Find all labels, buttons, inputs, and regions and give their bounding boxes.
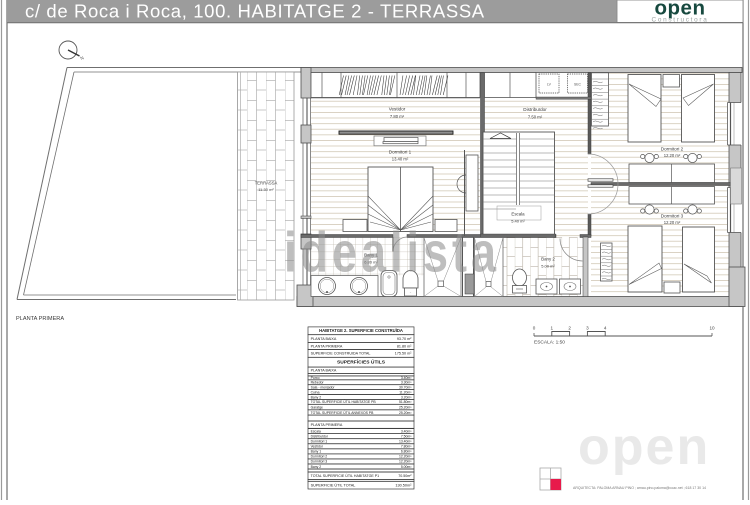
svg-text:Rebedor: Rebedor [311, 381, 325, 385]
svg-text:7.50 m²: 7.50 m² [528, 115, 543, 120]
svg-text:Escala: Escala [311, 429, 321, 433]
svg-text:Escala: Escala [511, 212, 525, 217]
svg-text:Garatge: Garatge [311, 405, 323, 409]
svg-text:2: 2 [568, 326, 571, 331]
svg-text:Bany 1: Bany 1 [311, 450, 322, 454]
svg-text:Dormitori 3: Dormitori 3 [311, 460, 328, 464]
svg-text:175.50 m²: 175.50 m² [395, 352, 412, 356]
svg-text:c/ de Roca i Roca, 100. HABITA: c/ de Roca i Roca, 100. HABITATGE 2 - TE… [25, 1, 485, 22]
svg-text:93.70 m²: 93.70 m² [397, 337, 412, 341]
svg-text:TERRASSA: TERRASSA [255, 181, 278, 186]
svg-text:81.80 m²: 81.80 m² [397, 344, 412, 348]
svg-text:HABITATGE 2. SUPERFICIE CONSTR: HABITATGE 2. SUPERFICIE CONSTRUÏDA [319, 328, 403, 333]
svg-text:130.50m²: 130.50m² [395, 483, 412, 487]
svg-text:12.20m²: 12.20m² [399, 460, 412, 464]
svg-text:Distribuïdor: Distribuïdor [311, 434, 329, 438]
svg-text:ARQUITECTA: PALOMA ARNAU PINO: ARQUITECTA: PALOMA ARNAU PINO ; arnau.pi… [573, 486, 706, 490]
svg-text:Dormitori 1: Dormitori 1 [389, 150, 412, 155]
svg-text:Dormitori 2: Dormitori 2 [311, 455, 328, 459]
svg-text:TOTAL SUPERFICIE ÚTIL ANNEXOS: TOTAL SUPERFICIE ÚTIL ANNEXOS PB [311, 410, 374, 415]
svg-text:12.20 m²: 12.20 m² [664, 220, 681, 225]
svg-text:open: open [578, 418, 710, 476]
svg-text:51.80m²: 51.80m² [399, 400, 412, 404]
svg-text:13.40m²: 13.40m² [399, 440, 412, 444]
svg-text:Bany 2: Bany 2 [311, 395, 322, 399]
svg-text:12.20 m²: 12.20 m² [664, 153, 681, 158]
svg-text:70.50m²: 70.50m² [398, 474, 412, 478]
svg-text:TOTAL SUPERFICIE ÚTIL HABITATG: TOTAL SUPERFICIE ÚTIL HABITATGE P1 [311, 473, 380, 478]
svg-text:25.20m²: 25.20m² [399, 405, 412, 409]
svg-text:Dormitori 1: Dormitori 1 [311, 440, 328, 444]
svg-text:Bany 2: Bany 2 [311, 465, 322, 469]
svg-text:SEC: SEC [574, 83, 582, 87]
svg-text:25.20m²: 25.20m² [399, 411, 412, 415]
svg-text:Dormitori 2: Dormitori 2 [661, 147, 684, 152]
svg-text:PLANTA PRIMERA: PLANTA PRIMERA [311, 423, 343, 427]
svg-text:Cuina: Cuina [311, 390, 320, 394]
svg-text:7.50m²: 7.50m² [401, 434, 412, 438]
svg-text:30.70m²: 30.70m² [399, 385, 412, 389]
svg-text:3.40m²: 3.40m² [401, 429, 412, 433]
svg-text:Dormitori 3: Dormitori 3 [661, 214, 684, 219]
svg-text:4: 4 [604, 326, 607, 331]
svg-text:PLANTA BAIXA: PLANTA BAIXA [311, 369, 337, 373]
svg-text:SUPERFICIE CONSTRUIDA TOTAL: SUPERFICIE CONSTRUIDA TOTAL [311, 352, 371, 356]
svg-text:Vestidor: Vestidor [311, 445, 324, 449]
svg-text:PLANTA BAIXA: PLANTA BAIXA [311, 337, 337, 341]
svg-text:7.80 m²: 7.80 m² [390, 114, 405, 119]
svg-text:12.20m²: 12.20m² [399, 455, 412, 459]
svg-text:5.00m²: 5.00m² [401, 465, 412, 469]
svg-text:0: 0 [533, 326, 536, 331]
svg-text:3.30m²: 3.30m² [401, 381, 412, 385]
svg-text:Sala - menjador: Sala - menjador [311, 385, 336, 389]
svg-text:3: 3 [586, 326, 589, 331]
svg-text:5.40 m²: 5.40 m² [511, 219, 525, 224]
svg-text:PLANTA PRIMERA: PLANTA PRIMERA [16, 316, 64, 322]
svg-text:idealista: idealista [284, 221, 500, 284]
svg-text:11.20m²: 11.20m² [399, 390, 412, 394]
svg-text:13.40 m²: 13.40 m² [392, 157, 409, 162]
svg-text:10: 10 [709, 326, 715, 331]
svg-text:PLANTA PRIMERA: PLANTA PRIMERA [311, 344, 343, 348]
svg-text:1: 1 [551, 326, 554, 331]
svg-text:11.30 m²: 11.30 m² [258, 187, 274, 192]
svg-text:TOTAL SUPERFICIE ÚTIL HABITATG: TOTAL SUPERFICIE ÚTIL HABITATGE PB [311, 399, 377, 404]
svg-text:SUPERFICIE ÚTIL TOTAL: SUPERFICIE ÚTIL TOTAL [311, 482, 356, 487]
svg-text:3.20m²: 3.20m² [401, 395, 412, 399]
svg-text:5.00 m²: 5.00 m² [541, 264, 555, 269]
svg-text:6.80m²: 6.80m² [401, 450, 412, 454]
svg-text:7.80m²: 7.80m² [401, 445, 412, 449]
svg-text:ESCALA: 1:50: ESCALA: 1:50 [534, 340, 565, 346]
svg-text:Vestidor: Vestidor [389, 107, 406, 112]
svg-text:Bany 2: Bany 2 [541, 257, 555, 262]
svg-text:Distribuïdor: Distribuïdor [523, 107, 547, 112]
